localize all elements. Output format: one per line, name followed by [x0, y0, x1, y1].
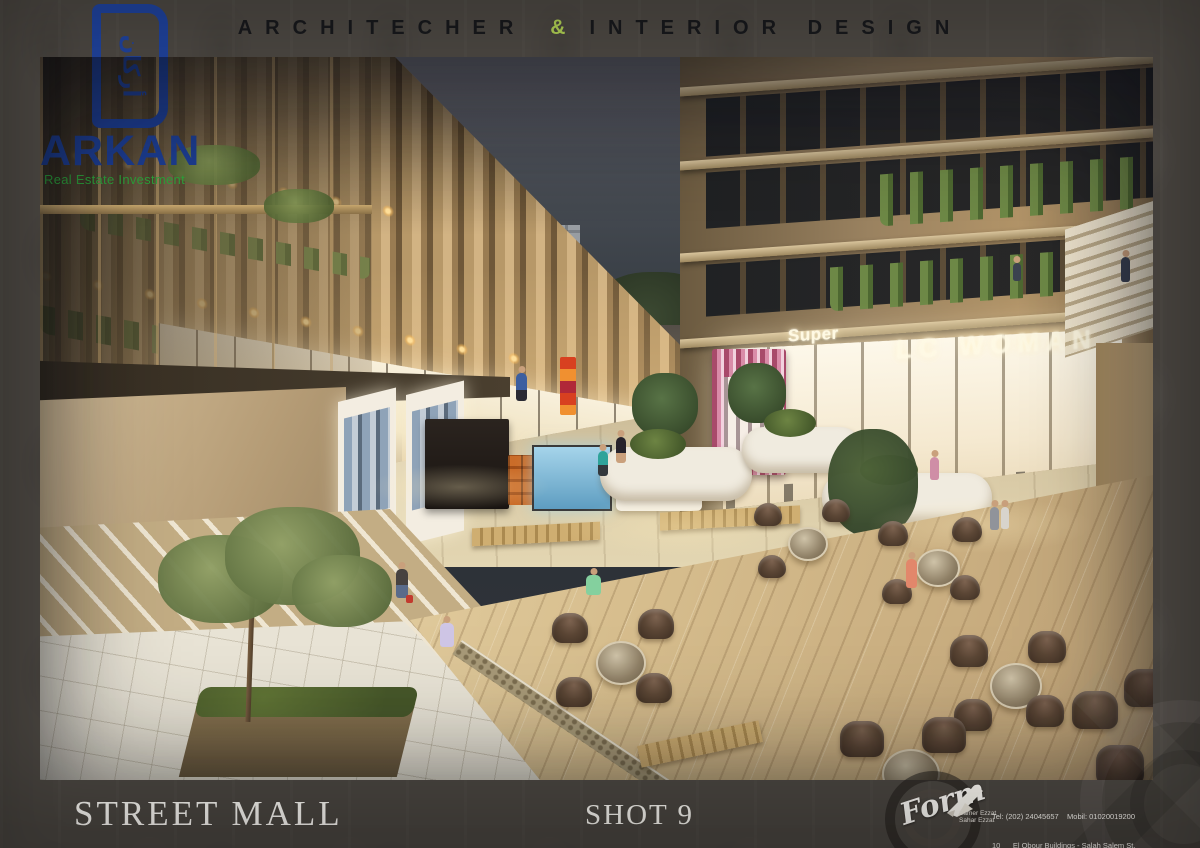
- cafe-chair: [840, 721, 884, 757]
- designer-names: Samer Ezzat Sahar Ezzat: [959, 810, 996, 824]
- cafe-chair: [950, 575, 980, 600]
- person-figure: [1001, 507, 1009, 529]
- cafe-chair: [950, 635, 988, 667]
- red-handbag: [406, 595, 413, 603]
- contact-line-address1: 10 El Obour Buildings - Salah Salem St.: [992, 841, 1135, 848]
- presentation-board: ARCHITECHER & INTERIOR DESIGN: [0, 0, 1200, 848]
- cafe-chair: [552, 613, 588, 643]
- cafe-chair: [556, 677, 592, 707]
- tree-canopy: [292, 555, 392, 627]
- light-pool: [340, 457, 580, 517]
- header-title-right: INTERIOR DESIGN: [589, 17, 962, 40]
- arkan-emblem-icon: أركان: [92, 4, 168, 128]
- cafe-chair: [754, 503, 782, 526]
- cafe-table: [788, 527, 828, 561]
- person-figure: [516, 373, 527, 401]
- cafe-chair: [822, 499, 850, 522]
- header-ampersand: &: [550, 16, 565, 40]
- designer-name: Sahar Ezzat: [959, 817, 996, 824]
- person-figure: [396, 569, 408, 598]
- contact-block: Tel: (202) 24045657 Mobil: 01020019200 1…: [992, 793, 1135, 848]
- island-greenery: [630, 429, 686, 459]
- colorful-display-totem: [560, 357, 576, 415]
- tree-planter: [179, 703, 415, 777]
- person-figure-seated: [586, 575, 601, 595]
- person-figure: [616, 437, 626, 463]
- arkan-name: ARKAN: [40, 130, 220, 172]
- cafe-chair: [878, 521, 908, 546]
- cafe-chair: [922, 717, 966, 753]
- cafe-chair: [952, 517, 982, 542]
- contact-line-tel: Tel: (202) 24045657 Mobil: 01020019200: [992, 812, 1135, 822]
- designer-name: Samer Ezzat: [959, 810, 996, 817]
- arkan-arabic-mark: أركان: [117, 35, 143, 98]
- person-figure-seated: [440, 623, 454, 647]
- project-title: STREET MALL: [74, 794, 343, 834]
- header-title-left: ARCHITECHER: [238, 17, 527, 40]
- person-figure: [930, 457, 939, 480]
- person-figure: [906, 559, 917, 588]
- cafe-chair: [638, 609, 674, 639]
- person-figure: [1121, 257, 1130, 282]
- shot-label: SHOT 9: [585, 799, 694, 832]
- person-figure: [990, 507, 999, 530]
- person-figure: [598, 451, 608, 476]
- arkan-logo: أركان ARKAN Real Estate Investment: [40, 4, 220, 187]
- person-figure: [1013, 263, 1021, 281]
- island-greenery: [764, 409, 816, 437]
- store-sign-super: Super: [788, 324, 839, 347]
- planter-hedge: [194, 687, 419, 717]
- cafe-chair: [758, 555, 786, 578]
- palm-cluster: [632, 373, 698, 437]
- balcony-plant: [264, 189, 334, 223]
- form-studio-block: Form Samer Ezzat Sahar Ezzat Tel: (202) …: [893, 783, 1178, 845]
- cafe-chair: [636, 673, 672, 703]
